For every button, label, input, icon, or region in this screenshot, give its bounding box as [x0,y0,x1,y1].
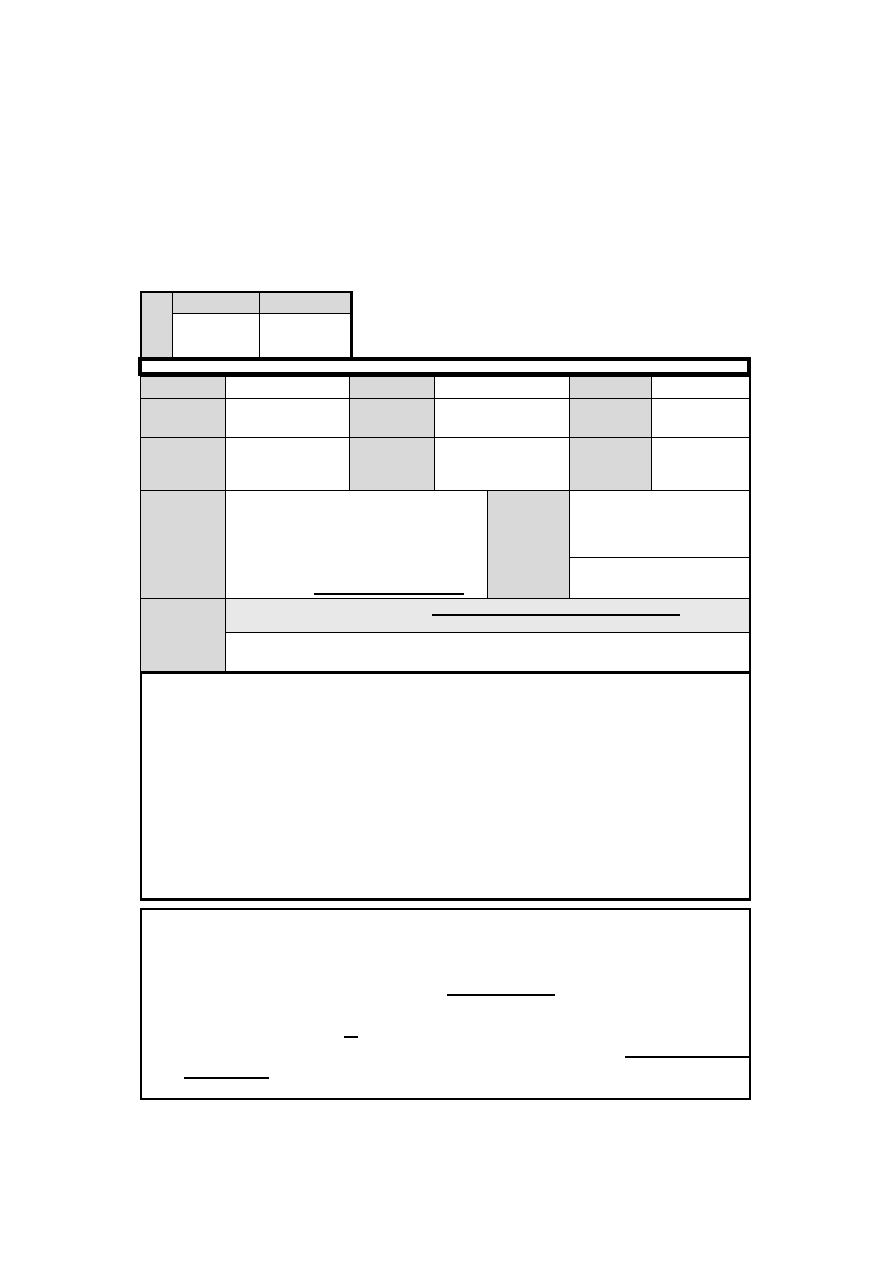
form-label-cell [350,377,435,399]
form-input-cell[interactable] [226,399,350,438]
top-table-corner-cell [142,293,173,359]
form-label-cell [570,438,652,491]
form-label-cell [141,491,226,599]
top-table-value-1[interactable] [173,314,260,359]
form-label-cell [570,399,652,438]
highlight-banner-cell[interactable] [226,599,750,633]
form-input-cell[interactable] [435,399,570,438]
form-label-cell [570,377,652,399]
certification-box[interactable] [140,908,751,1100]
blank-write-line[interactable] [184,1077,269,1079]
form-label-cell [141,438,226,491]
form-input-cell[interactable] [652,399,750,438]
form-label-cell [350,399,435,438]
form-input-cell[interactable] [570,558,750,599]
top-table-value-2[interactable] [260,314,351,359]
form-input-cell[interactable] [435,438,570,491]
blank-write-line[interactable] [432,614,680,616]
blank-write-line[interactable] [625,1056,749,1058]
blank-write-line[interactable] [344,1036,358,1038]
blank-write-line[interactable] [447,994,555,996]
form-label-cell [350,438,435,491]
section-title-bar [138,357,751,376]
form-input-cell[interactable] [652,438,750,491]
form-input-cell[interactable] [570,491,750,558]
form-label-cell [141,377,226,399]
top-info-table [140,291,353,361]
blank-write-line[interactable] [314,593,464,595]
form-input-cell[interactable] [226,377,350,399]
form-input-cell[interactable] [226,438,350,491]
top-table-header-1 [173,293,260,314]
notes-box[interactable] [140,672,751,901]
form-input-cell[interactable] [226,633,750,672]
main-form-table [140,376,751,673]
form-input-cell[interactable] [652,377,750,399]
top-table-header-2 [260,293,351,314]
document-page [0,0,893,1262]
large-input-cell[interactable] [226,491,488,599]
form-label-cell [141,599,226,672]
form-label-cell [488,491,570,599]
form-label-cell [141,399,226,438]
form-input-cell[interactable] [435,377,570,399]
